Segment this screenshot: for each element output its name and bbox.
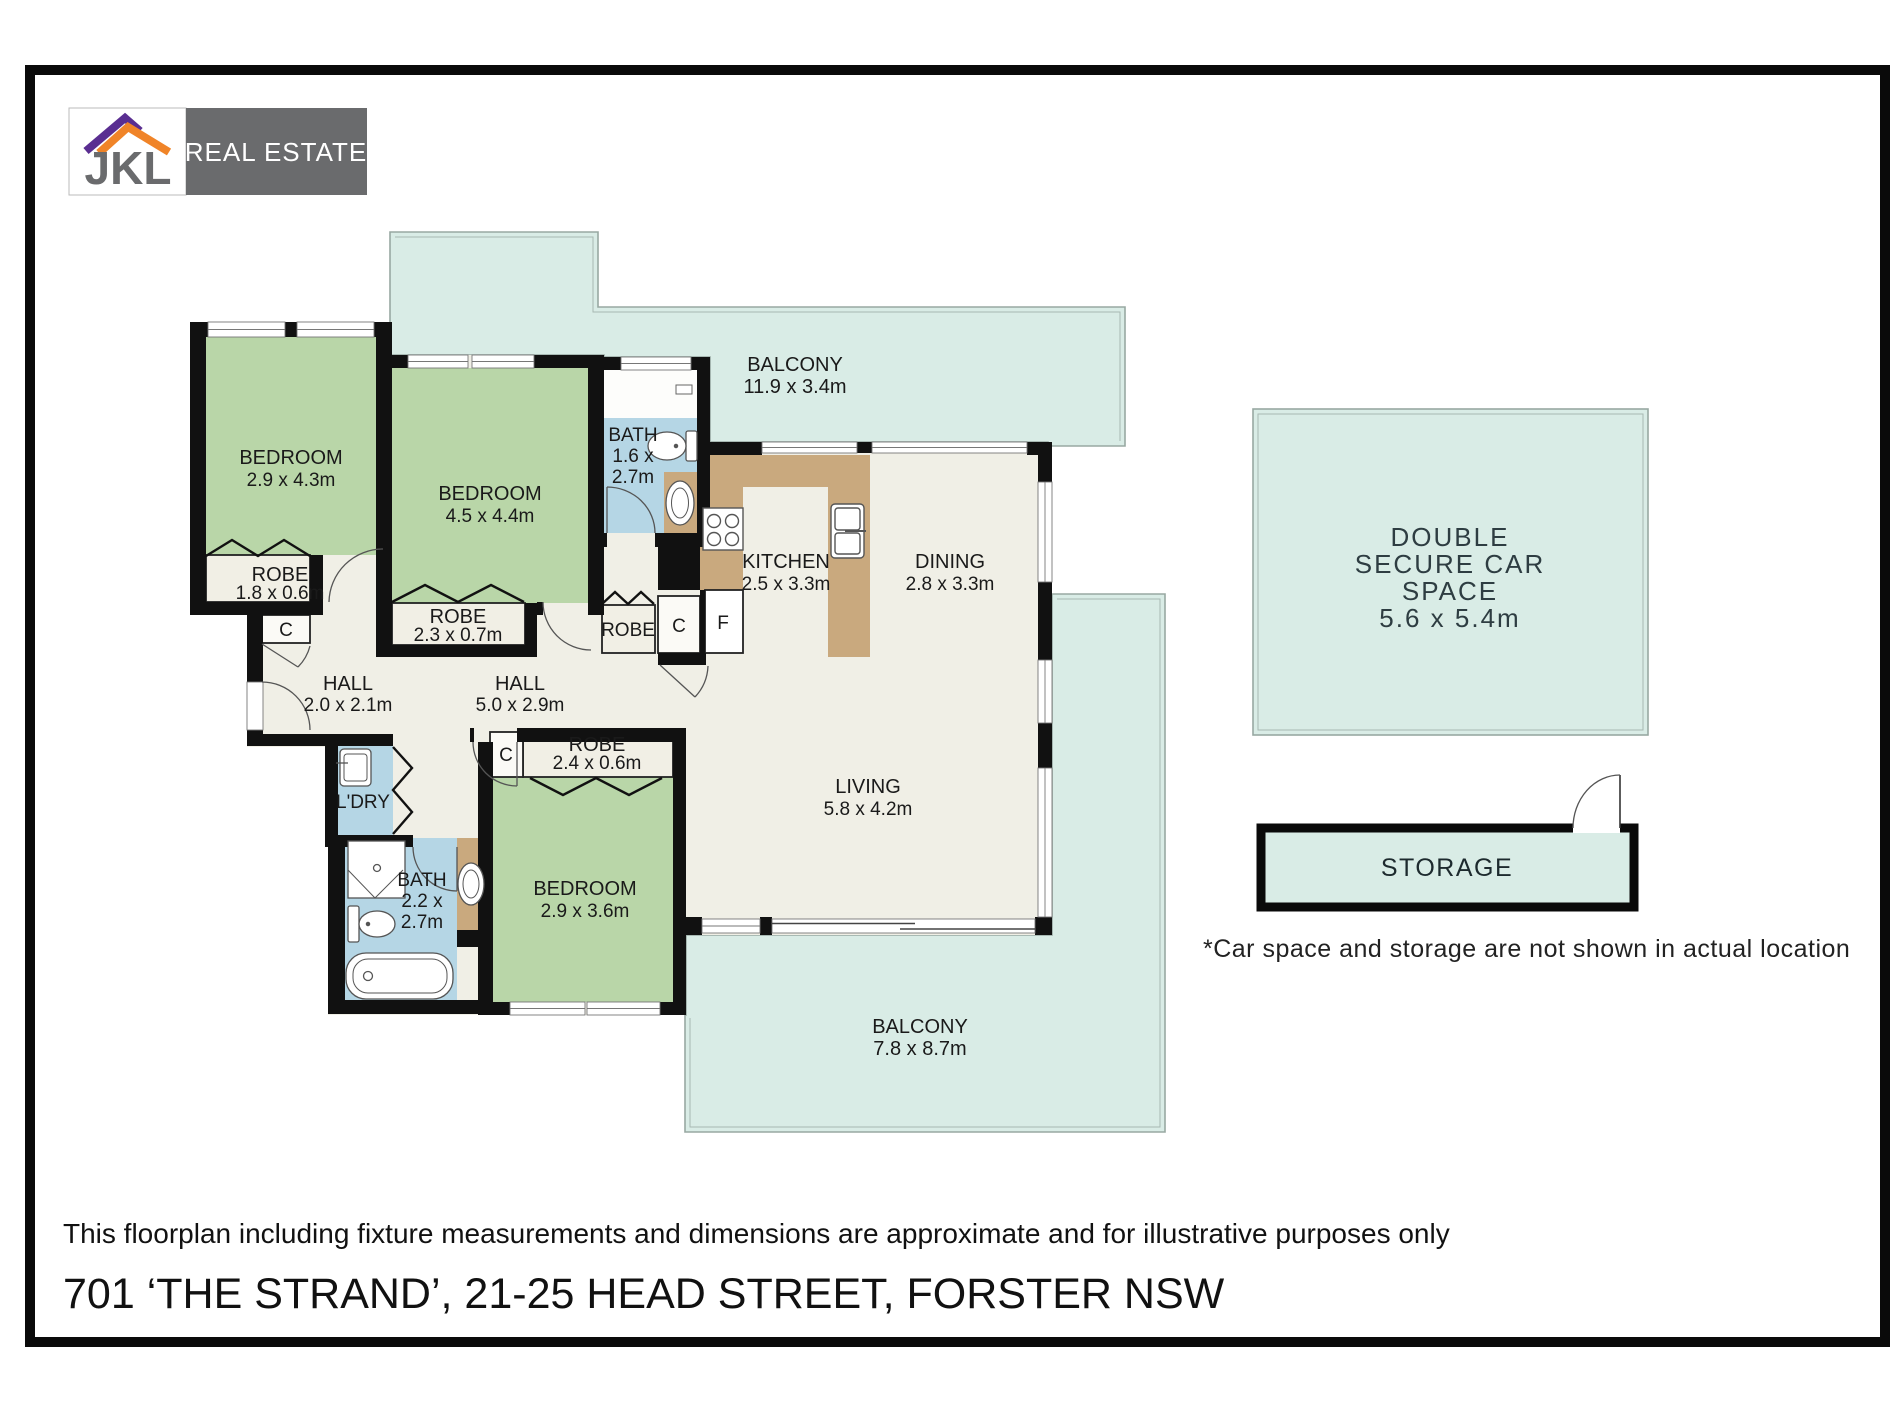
kitchen-dims: 2.5 x 3.3m (742, 574, 831, 595)
car-space: DOUBLE SECURE CAR SPACE 5.6 x 5.4m (1253, 409, 1648, 735)
balcony-bottom-label: BALCONY (872, 1016, 968, 1038)
laundry-label: L'DRY (336, 792, 390, 813)
robe1-dims: 1.8 x 0.6m (236, 583, 325, 604)
robe2-dims: 2.3 x 0.7m (414, 625, 503, 646)
basin-icon (666, 481, 694, 525)
living-dims: 5.8 x 4.2m (824, 799, 913, 820)
carspace-line2: SECURE CAR (1355, 549, 1545, 579)
bath2-label: BATH (397, 870, 446, 891)
bath1-label: BATH (608, 425, 657, 446)
dining-dims: 2.8 x 3.3m (906, 574, 995, 595)
storage-door-gap (1573, 820, 1620, 833)
cistern-icon (676, 385, 692, 394)
address: 701 ‘THE STRAND’, 21-25 HEAD STREET, FOR… (63, 1270, 1225, 1318)
logo-brand-text: JKL (85, 142, 172, 194)
bath2-dims1: 2.2 x (401, 891, 443, 912)
carspace-line3: SPACE (1402, 576, 1498, 606)
hall2-label: HALL (495, 673, 545, 695)
bath1-dims1: 1.6 x (612, 446, 654, 467)
bedroom2-dims: 4.5 x 4.4m (446, 506, 535, 527)
kitchen-label: KITCHEN (742, 551, 830, 573)
robe3-dims: 2.4 x 0.6m (553, 753, 642, 774)
bedroom3-label: BEDROOM (533, 878, 636, 900)
bedroom3-dims: 2.9 x 3.6m (541, 901, 630, 922)
sink-icon (831, 504, 866, 558)
balcony-top-dims: 11.9 x 3.4m (743, 376, 846, 398)
bath2-dims2: 2.7m (401, 912, 443, 933)
cupboard3-label: C (499, 745, 513, 766)
basin2-icon (458, 863, 484, 905)
bedroom3-fill (493, 742, 673, 1002)
bedroom1-label: BEDROOM (239, 447, 342, 469)
bedroom1-fill (206, 337, 376, 555)
kitchen-counter-top (700, 455, 870, 487)
hall1-dims: 2.0 x 2.1m (304, 695, 393, 716)
hall1-label: HALL (323, 673, 373, 695)
carspace-dims: 5.6 x 5.4m (1379, 603, 1520, 633)
bath1-dims2: 2.7m (612, 467, 654, 488)
balcony-bottom-dims: 7.8 x 8.7m (873, 1038, 966, 1060)
carspace-line1: DOUBLE (1391, 522, 1510, 552)
logo-tagline-text: REAL ESTATE (185, 137, 367, 167)
hall2-dims: 5.0 x 2.9m (476, 695, 565, 716)
living-label: LIVING (835, 776, 901, 798)
dining-label: DINING (915, 551, 985, 573)
bedroom2-label: BEDROOM (438, 483, 541, 505)
stove-icon (703, 508, 743, 550)
laundry-tub-icon (336, 749, 371, 786)
disclaimer: This floorplan including fixture measure… (63, 1218, 1450, 1249)
fridge-label: F (717, 613, 729, 634)
bedroom1-dims: 2.9 x 4.3m (247, 470, 336, 491)
floorplan-page: JKL REAL ESTATE (0, 0, 1900, 1425)
jkl-logo: JKL REAL ESTATE (69, 108, 367, 195)
storage-label: STORAGE (1381, 854, 1513, 882)
balcony-top-label: BALCONY (747, 354, 843, 376)
cupboard1-label: C (279, 620, 293, 641)
carspace-note: *Car space and storage are not shown in … (1203, 935, 1850, 963)
bathtub-icon (346, 953, 453, 999)
cupboard2-label: C (672, 616, 686, 637)
robe4-label: ROBE (601, 620, 655, 641)
